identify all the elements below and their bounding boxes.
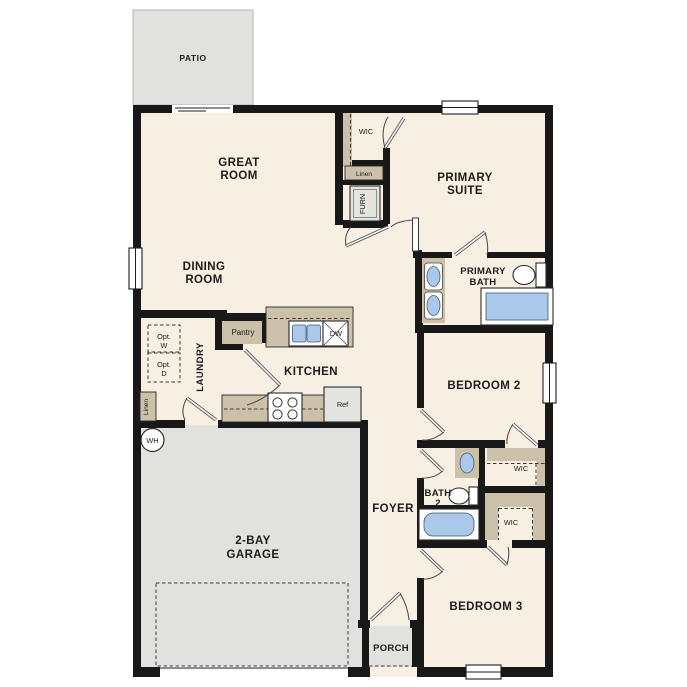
- furnace-label: FURN: [358, 194, 367, 214]
- bedroom3-label: BEDROOM 3: [449, 601, 522, 613]
- opt-washer-label: Opt.: [157, 332, 171, 341]
- floor-plan-page: PATIO GREAT ROOM DINING ROOM PRIMARY SUI…: [0, 0, 687, 687]
- garage-door: [160, 666, 348, 678]
- patio-label: PATIO: [179, 53, 206, 63]
- bedroom2-wic-label: WIC: [514, 464, 528, 473]
- garage-label: 2-BAY: [235, 535, 270, 547]
- foyer-label: FOYER: [372, 503, 414, 515]
- primary-wic-label: WIC: [359, 127, 373, 136]
- patio-sliding-door: [172, 105, 233, 113]
- primary-bath-toilet: [513, 263, 546, 287]
- svg-text:ROOM: ROOM: [220, 170, 257, 182]
- stove: [268, 393, 302, 422]
- dishwasher-label: DW: [330, 329, 342, 338]
- svg-text:GARAGE: GARAGE: [227, 549, 280, 561]
- primary-bath-label: PRIMARY: [460, 266, 506, 277]
- bedroom3-wic-shelf: [485, 493, 545, 507]
- laundry-label: LAUNDRY: [195, 342, 206, 392]
- svg-text:SUITE: SUITE: [447, 185, 483, 197]
- porch-label: PORCH: [373, 643, 409, 654]
- pantry-label: Pantry: [231, 328, 254, 337]
- svg-text:BATH: BATH: [470, 277, 497, 288]
- floor-plan-drawing: PATIO GREAT ROOM DINING ROOM PRIMARY SUI…: [0, 0, 687, 687]
- dining-room-label: DINING: [183, 261, 226, 273]
- primary-suite-label: PRIMARY: [437, 172, 492, 184]
- svg-text:2: 2: [435, 498, 441, 509]
- bedroom2-label: BEDROOM 2: [447, 380, 520, 392]
- hall-linen-label: Linen: [356, 171, 372, 178]
- bedroom2-wic-shelf: [487, 448, 545, 461]
- svg-text:W: W: [161, 341, 168, 350]
- laundry-linen-label: Linen: [143, 399, 150, 415]
- water-heater-label: WH: [146, 436, 158, 445]
- bedroom3-wic-label: WIC: [504, 518, 518, 527]
- svg-text:D: D: [161, 369, 166, 378]
- great-room-label: GREAT: [218, 157, 259, 169]
- primary-bath-tub: [481, 288, 553, 325]
- bath2-toilet: [449, 487, 478, 505]
- refrigerator-label: Ref: [337, 400, 349, 409]
- svg-text:ROOM: ROOM: [185, 274, 222, 286]
- kitchen-label: KITCHEN: [284, 366, 338, 378]
- opt-dryer-label: Opt.: [157, 360, 171, 369]
- bath2-tub: [419, 509, 479, 540]
